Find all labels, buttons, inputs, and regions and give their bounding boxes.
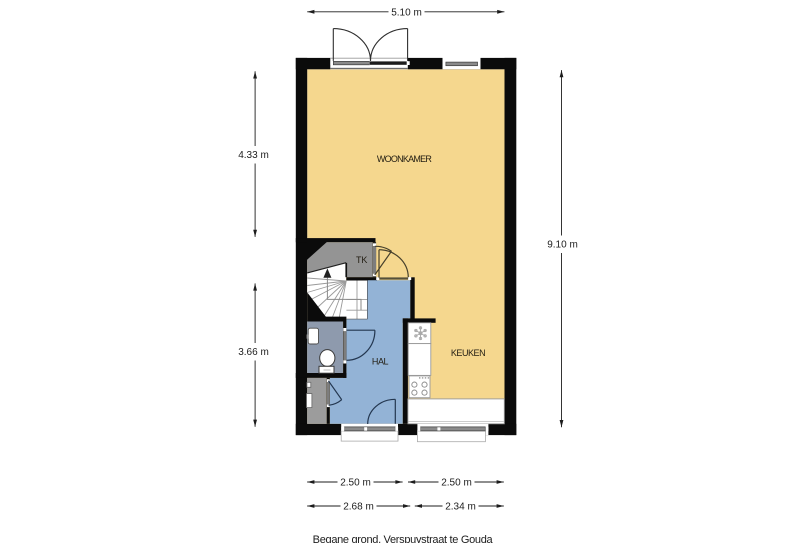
svg-text:2.50 m: 2.50 m (340, 478, 371, 489)
svg-text:2.50 m: 2.50 m (441, 478, 472, 489)
svg-text:4.33 m: 4.33 m (238, 150, 269, 161)
svg-text:9.10 m: 9.10 m (547, 240, 578, 251)
svg-text:2.34 m: 2.34 m (445, 502, 476, 513)
svg-text:5.10 m: 5.10 m (391, 7, 422, 18)
svg-text:3.66 m: 3.66 m (238, 347, 269, 358)
svg-text:2.68 m: 2.68 m (343, 502, 374, 513)
svg-text:Begane grond, Verspuystraat te: Begane grond, Verspuystraat te Gouda (313, 534, 494, 543)
svg-text:KEUKEN: KEUKEN (451, 348, 485, 358)
svg-text:WOONKAMER: WOONKAMER (377, 154, 433, 164)
svg-text:HAL: HAL (372, 356, 389, 366)
svg-text:TK: TK (356, 255, 368, 265)
